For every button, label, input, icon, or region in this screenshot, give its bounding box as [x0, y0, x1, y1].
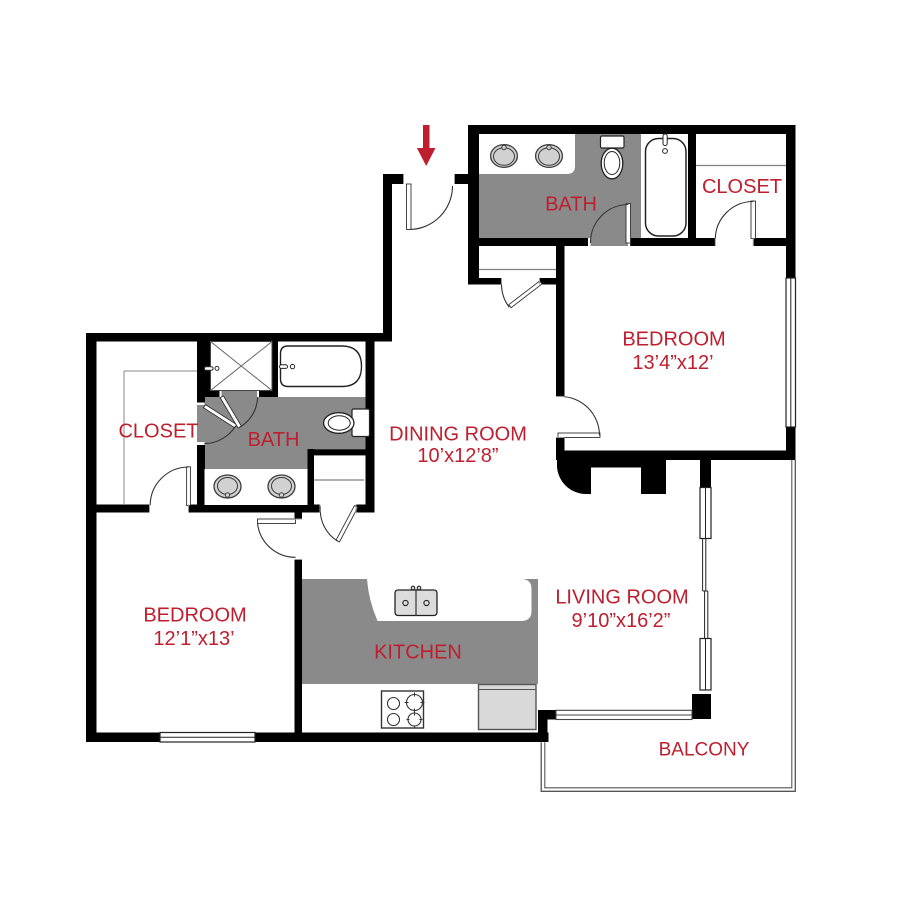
svg-text:DINING ROOM: DINING ROOM — [389, 424, 527, 446]
svg-text:CLOSET: CLOSET — [118, 421, 198, 443]
svg-text:LIVING ROOM: LIVING ROOM — [555, 587, 688, 609]
svg-text:BATH: BATH — [248, 429, 300, 451]
svg-text:BEDROOM: BEDROOM — [622, 329, 725, 351]
svg-text:BALCONY: BALCONY — [659, 740, 750, 761]
svg-text:10’x12’8”: 10’x12’8” — [417, 445, 498, 467]
svg-text:BATH: BATH — [545, 194, 597, 216]
svg-text:BEDROOM: BEDROOM — [143, 605, 246, 627]
svg-text:13’4”x12’: 13’4”x12’ — [632, 352, 713, 374]
svg-text:12’1”x13’: 12’1”x13’ — [153, 628, 234, 650]
svg-text:CLOSET: CLOSET — [702, 176, 782, 198]
svg-text:KITCHEN: KITCHEN — [374, 642, 462, 664]
svg-text:9’10”x16’2”: 9’10”x16’2” — [572, 610, 671, 632]
